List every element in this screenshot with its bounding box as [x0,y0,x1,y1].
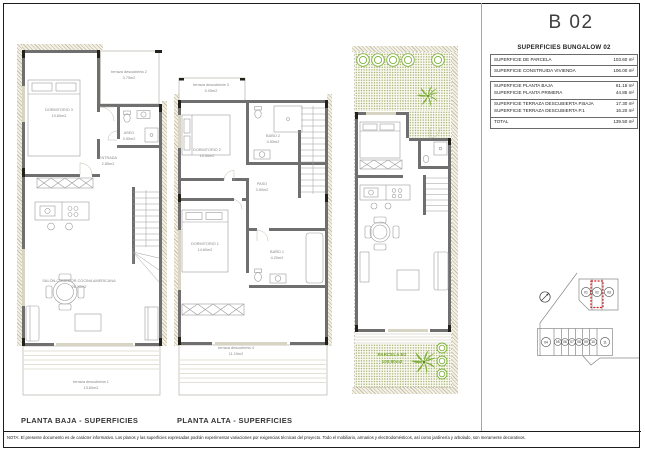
floor-plan-planta-baja: DORMITORIO 3 10.60m2 terraza descubierta… [17,44,167,400]
dining-table-icon [365,217,399,250]
tv-bench-icon [360,252,369,282]
walls [178,100,328,345]
north-arrow-icon [540,292,550,302]
room-label-bano1: BAÑO 1 4.20m2 [270,250,284,262]
room-area: 3.50m2 [123,137,136,143]
table-cell-value: 103.60 m² [613,57,634,64]
room-area: 26.10m2 [42,285,115,291]
table-cell-value: 61.15 m² [616,83,634,90]
bed-icon [360,122,400,158]
planta-baja-drawing [17,44,167,400]
door-arcs [430,128,440,138]
stairs-icon [426,178,448,211]
room-name: DORMITORIO 2 [193,148,221,154]
unit-number: 01 [584,290,588,294]
room-label-salon: SALÓN-COMEDOR-COCINA AMERICANA 26.10m2 [42,279,115,291]
room-name: BAÑO 1 [270,250,284,256]
parcel-boundary-line [583,356,639,365]
bathroom-fixtures-icon [255,233,324,283]
key-plan: 01 02 03 04 05 06 07 [488,268,640,390]
parcela-label: PARCELA B2 103.60m2 [378,352,407,366]
room-name: PASO [256,182,269,188]
room-name: DORMITORIO 1 [191,242,219,248]
unit-number: 09 [584,340,588,344]
wardrobe-icon [360,160,402,169]
palm-tree-icon [417,86,440,107]
palm-tree-icon [411,350,437,375]
terrace-decking [180,360,326,383]
room-name: SALÓN-COMEDOR-COCINA AMERICANA [42,279,115,285]
table-row: SUPERFICIE PLANTA BAJA 61.15 m² SUPERFIC… [490,81,638,100]
wardrobe-icon [182,304,244,315]
room-label-terraza3: terraza descubierta 3 5.05m2 [193,83,229,95]
unit-number: 02 [595,290,599,294]
tv-bench-icon [145,307,158,340]
unit-title: B 02 [534,12,608,34]
room-label-entrada: ENTRADA 2.85m2 [99,156,117,168]
unit-number: 07 [570,340,574,344]
room-area: 4.20m2 [270,256,284,262]
wardrobe-icon [37,178,93,188]
room-area: 3.70m2 [111,76,147,82]
floor-plan-planta-alta: terraza descubierta 3 5.05m2 DORMITORIO … [174,70,332,400]
room-label-aseo: ASEO 3.50m2 [123,131,136,143]
room-area: 4.50m2 [266,140,280,146]
footer-divider [3,431,641,432]
bed-icon [182,210,228,272]
plan-sheet: DORMITORIO 3 10.60m2 terraza descubierta… [0,0,645,451]
column-ticks [178,78,328,345]
table-cell-label: SUPERFICIE DE PARCELA [494,57,552,64]
stairs-icon [133,190,159,282]
caption-planta-alta: PLANTA ALTA - SUPERFICIES [177,416,292,425]
room-label-terraza1: terraza descubierta 1 13.60m2 [73,380,109,392]
room-name: DORMITORIO 3 [45,108,73,114]
surfaces-table-title: SUPERFICIES BUNGALOW 02 [490,44,638,51]
room-label-dormitorio1: DORMITORIO 1 14.60m2 [191,242,219,254]
table-cell-label: SUPERFICIE PLANTA BAJA [494,83,553,90]
room-name: BAÑO 2 [266,134,280,140]
table-cell-value: 139.50 m² [613,119,634,126]
table-cell-value: 16.20 m² [616,108,634,115]
room-area: 3.50m2 [256,188,269,194]
stairs-icon [301,106,325,194]
surfaces-table: SUPERFICIE DE PARCELA 103.60 m² SUPERFIC… [490,54,638,129]
room-label-terraza4: terraza descubierta 4 11.15m2 [218,346,254,358]
unit-number: 04 [544,340,548,344]
room-label-dormitorio2: DORMITORIO 2 10.50m2 [193,148,221,160]
rug-icon [75,314,101,331]
kitchen-counter-icon [360,185,410,209]
table-cell-label: SUPERFICIE PLANTA PRIMERA [494,90,562,97]
table-cell-label: SUPERFICIE TERRAZA DESCUBIERTA P.1 [494,108,585,115]
room-label-bano2: BAÑO 2 4.50m2 [266,134,280,146]
sofa-icon [26,306,39,341]
kitchen-counter-icon [35,202,89,230]
rug-icon [397,270,419,290]
room-name: terraza descubierta 3 [193,83,229,89]
parcela-drawing [352,46,458,394]
room-label-dormitorio3: DORMITORIO 3 10.60m2 [45,108,73,120]
pergola-slats [355,334,451,343]
table-row-total: TOTAL 139.50 m² [490,117,638,129]
footer-note: NOTA: El presente documento es de caráct… [7,435,635,440]
unit-number: 06 [563,340,567,344]
room-area: 11.15m2 [218,352,254,358]
table-row: SUPERFICIE CONSTRUIDA VIVIENDA 106.00 m² [490,65,638,77]
parcela-name: PARCELA B2 [378,352,407,359]
caption-planta-baja: PLANTA BAJA - SUPERFICIES [21,416,138,425]
title-block-divider [481,3,482,431]
room-area: 2.85m2 [99,162,117,168]
parcela-area: 103.60m2 [378,359,407,366]
unit-number: 05 [556,340,560,344]
room-area: 14.60m2 [191,248,219,254]
table-row: SUPERFICIE TERRAZA DESCUBIERTA P.BAJA 17… [490,99,638,118]
table-cell-label: SUPERFICIE TERRAZA DESCUBIERTA P.BAJA [494,101,594,108]
unit-circles-top: 01 02 03 [581,287,613,296]
terrace-decking [24,351,159,369]
unit-number: 10 [591,340,595,344]
bathroom-fixtures-icon [254,106,302,159]
table-cell-label: TOTAL [494,119,508,126]
bathroom-fixtures-icon [423,142,447,163]
room-area: 10.50m2 [193,154,221,160]
walls [355,112,451,332]
unit-number: 08 [577,340,581,344]
column-ticks [355,112,451,332]
room-area: 5.05m2 [193,89,229,95]
table-cell-value: 17.30 m² [616,101,634,108]
table-cell-label: SUPERFICIE CONSTRUIDA VIVIENDA [494,68,576,75]
room-area: 10.60m2 [45,114,73,120]
room-name: terraza descubierta 4 [218,346,254,352]
room-name: terraza descubierta 1 [73,380,109,386]
site-plan-parcela: PARCELA B2 103.60m2 [352,46,458,394]
sofa-icon [434,252,448,290]
unit-number: 03 [607,290,611,294]
room-name: ENTRADA [99,156,117,162]
table-cell-value: 44.85 m² [616,90,634,97]
room-area: 13.60m2 [73,386,109,392]
room-label-terraza2: terraza descubierta 2 3.70m2 [111,70,147,82]
room-name: ASEO [123,131,136,137]
unit-number: 11 [603,340,607,344]
table-cell-value: 106.00 m² [613,68,634,75]
room-label-paso: PASO 3.50m2 [256,182,269,194]
room-name: terraza descubierta 2 [111,70,147,76]
